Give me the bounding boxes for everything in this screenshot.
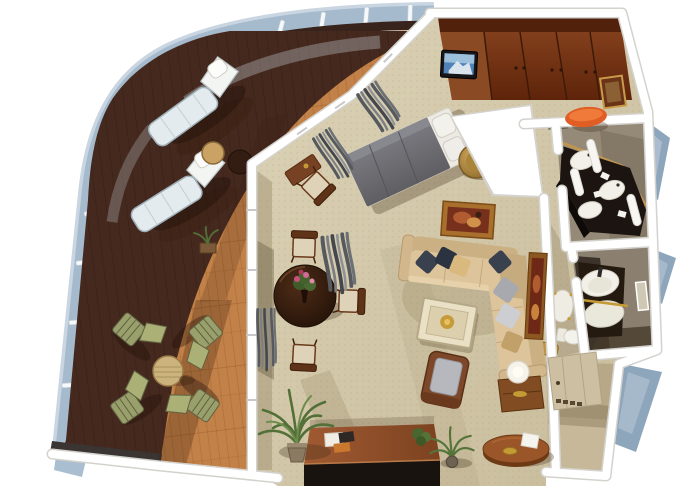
card bbox=[521, 433, 539, 449]
tall-painting bbox=[525, 253, 547, 340]
wall-tv bbox=[440, 50, 477, 79]
landscape-painting bbox=[441, 201, 495, 239]
cabin-door bbox=[548, 352, 602, 410]
wardrobe-header bbox=[438, 17, 622, 32]
gold-dish bbox=[503, 448, 517, 455]
suite-floorplan-render bbox=[0, 0, 680, 486]
floorplan-svg bbox=[0, 0, 680, 486]
vanity-mirror bbox=[600, 76, 626, 109]
door-handle bbox=[556, 381, 560, 385]
lounger-side-table bbox=[202, 142, 224, 164]
bath-mirror bbox=[636, 282, 649, 311]
coffee-table bbox=[416, 298, 480, 354]
deck-dining-table bbox=[153, 356, 183, 386]
